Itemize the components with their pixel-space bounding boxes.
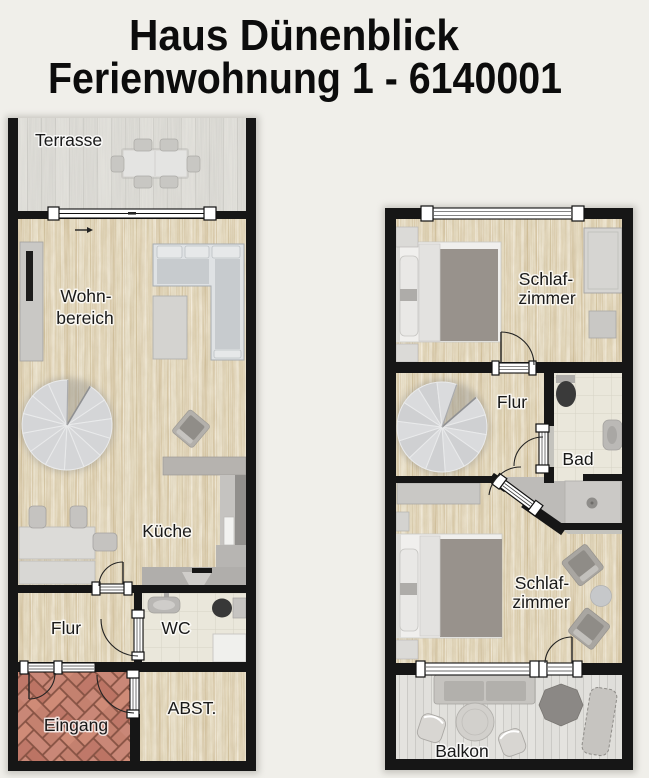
- svg-text:zimmer: zimmer: [518, 288, 576, 308]
- svg-text:Schlaf-: Schlaf-: [519, 269, 574, 289]
- svg-text:zimmer: zimmer: [512, 592, 570, 612]
- svg-text:Balkon: Balkon: [435, 741, 489, 761]
- svg-text:Eingang: Eingang: [44, 715, 108, 735]
- svg-text:Schlaf-: Schlaf-: [515, 573, 570, 593]
- svg-text:Küche: Küche: [142, 521, 192, 541]
- svg-text:Haus Dünenblick: Haus Dünenblick: [129, 11, 459, 60]
- svg-text:Ferienwohnung 1 - 6140001: Ferienwohnung 1 - 6140001: [48, 54, 562, 103]
- svg-text:ABST.: ABST.: [168, 698, 217, 718]
- svg-text:bereich: bereich: [56, 308, 113, 328]
- svg-text:Flur: Flur: [497, 392, 527, 412]
- svg-text:Terrasse: Terrasse: [35, 130, 102, 150]
- svg-text:Wohn-: Wohn-: [60, 286, 111, 306]
- svg-text:Bad: Bad: [562, 449, 593, 469]
- svg-text:WC: WC: [161, 618, 190, 638]
- svg-text:Flur: Flur: [51, 618, 81, 638]
